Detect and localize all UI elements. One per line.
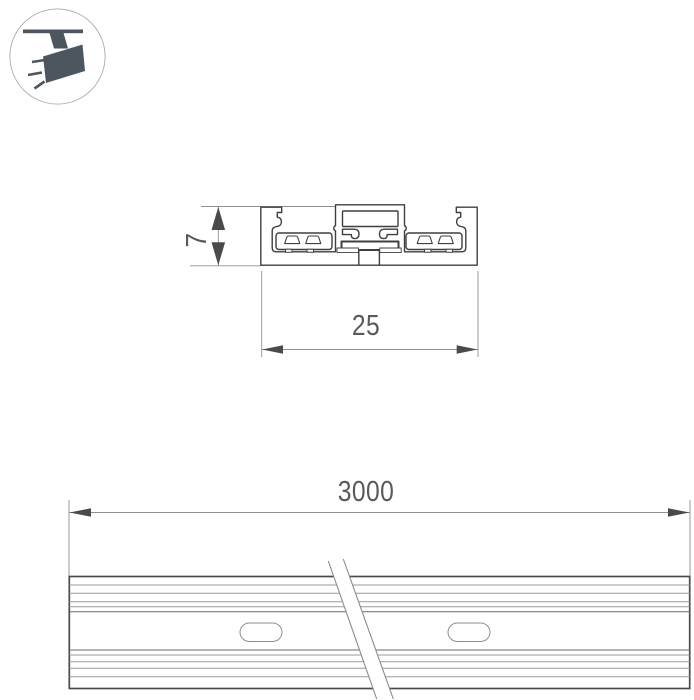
technical-drawing-page: 7 25 3000 — [0, 0, 694, 700]
width-dimension-label: 25 — [332, 310, 400, 342]
conductor-bar-right — [406, 233, 462, 252]
center-cavity — [343, 211, 399, 227]
track-light-icon — [9, 8, 106, 105]
arrow-left — [70, 508, 92, 516]
height-dimension-label: 7 — [181, 225, 213, 256]
arrow-right — [668, 508, 690, 516]
arrow-down — [212, 242, 226, 265]
length-dimension-lines — [69, 500, 690, 576]
mounting-slot — [448, 623, 490, 642]
rail-body — [69, 559, 689, 699]
mounting-slot — [240, 623, 282, 642]
arrow-up — [212, 207, 226, 230]
ceiling-bar — [23, 30, 83, 34]
conductor-bar-left — [276, 233, 332, 252]
arrow-right — [457, 345, 478, 354]
arrow-left — [262, 345, 283, 354]
track-profile-section — [261, 205, 477, 265]
rail-drawing — [60, 470, 694, 700]
